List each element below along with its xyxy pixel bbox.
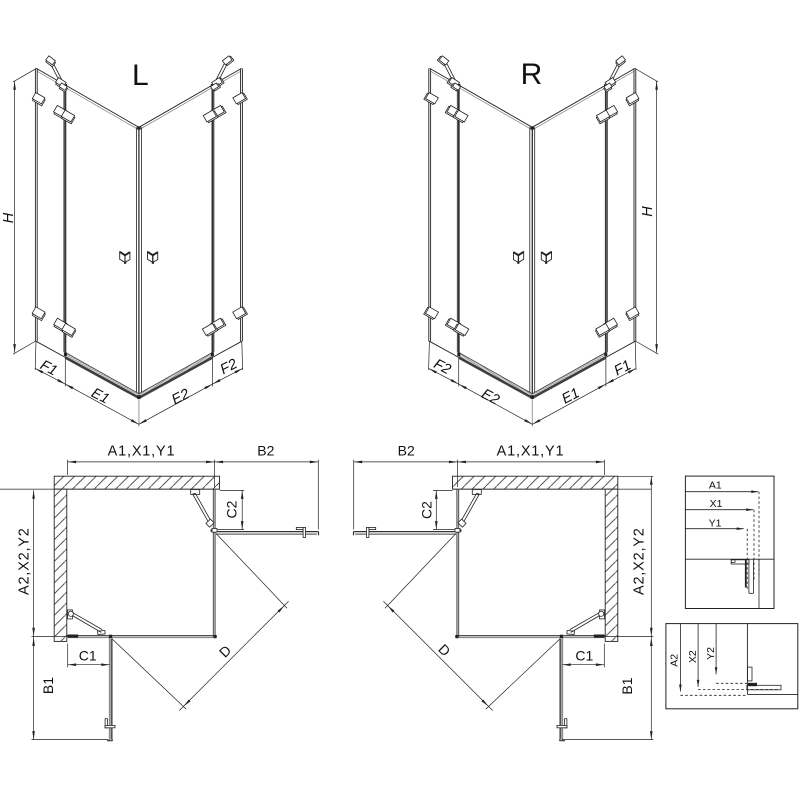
svg-text:L: L bbox=[132, 59, 149, 92]
svg-text:C1: C1 bbox=[575, 648, 593, 664]
svg-text:X2: X2 bbox=[687, 650, 699, 663]
svg-text:R: R bbox=[521, 58, 543, 91]
svg-text:A2,X2,Y2: A2,X2,Y2 bbox=[632, 527, 648, 595]
svg-text:A2: A2 bbox=[669, 654, 681, 667]
svg-text:A2,X2,Y2: A2,X2,Y2 bbox=[17, 527, 33, 595]
svg-text:B2: B2 bbox=[257, 442, 274, 458]
svg-text:H: H bbox=[640, 206, 656, 217]
svg-text:A1,X1,Y1: A1,X1,Y1 bbox=[108, 443, 176, 459]
svg-text:C2: C2 bbox=[419, 501, 435, 519]
svg-text:H: H bbox=[1, 212, 17, 223]
svg-text:Y1: Y1 bbox=[709, 517, 722, 529]
svg-text:C2: C2 bbox=[224, 500, 240, 518]
svg-text:A1,X1,Y1: A1,X1,Y1 bbox=[497, 443, 565, 459]
svg-text:B1: B1 bbox=[619, 677, 635, 694]
svg-text:C1: C1 bbox=[79, 648, 97, 664]
svg-text:X1: X1 bbox=[710, 498, 723, 510]
svg-text:B2: B2 bbox=[398, 442, 415, 458]
svg-text:B1: B1 bbox=[40, 677, 56, 694]
svg-text:Y2: Y2 bbox=[705, 647, 717, 660]
svg-text:A1: A1 bbox=[709, 480, 722, 492]
